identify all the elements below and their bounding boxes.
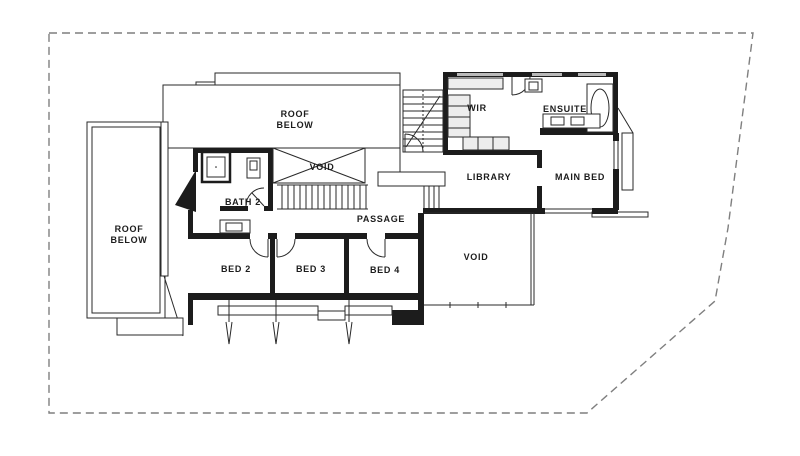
vanity-double-basin [543, 114, 600, 128]
wardrobe-shelves [448, 78, 509, 150]
label-roof-below-left-2: BELOW [111, 235, 148, 245]
label-void-right: VOID [464, 252, 489, 262]
toilet-icon [525, 79, 542, 92]
label-bed4: BED 4 [370, 265, 400, 275]
label-roof-below-left: ROOF [115, 224, 144, 234]
floor-plan: ROOF BELOW ROOF BELOW WIR ENSUITE LIBRAR… [0, 0, 800, 456]
label-passage: PASSAGE [357, 214, 405, 224]
label-wir: WIR [467, 103, 487, 113]
label-roof-below-top: ROOF [281, 109, 310, 119]
label-bed2: BED 2 [221, 264, 251, 274]
label-ensuite: ENSUITE [543, 104, 587, 114]
stair-landing [378, 148, 445, 208]
label-library: LIBRARY [467, 172, 512, 182]
label-bath2: BATH 2 [225, 197, 261, 207]
stair-lower-flight [277, 185, 368, 209]
label-bed3: BED 3 [296, 264, 326, 274]
toilet-icon [247, 158, 260, 178]
vanity-basin [220, 220, 250, 233]
bath2-fixtures [202, 152, 260, 233]
label-roof-below-top-2: BELOW [277, 120, 314, 130]
label-main-bed: MAIN BED [555, 172, 605, 182]
floor-plan-canvas: ROOF BELOW ROOF BELOW WIR ENSUITE LIBRAR… [0, 0, 800, 456]
shower-icon [202, 152, 230, 182]
stair-upper-flight [403, 90, 443, 152]
label-void-stair: VOID [310, 162, 335, 172]
